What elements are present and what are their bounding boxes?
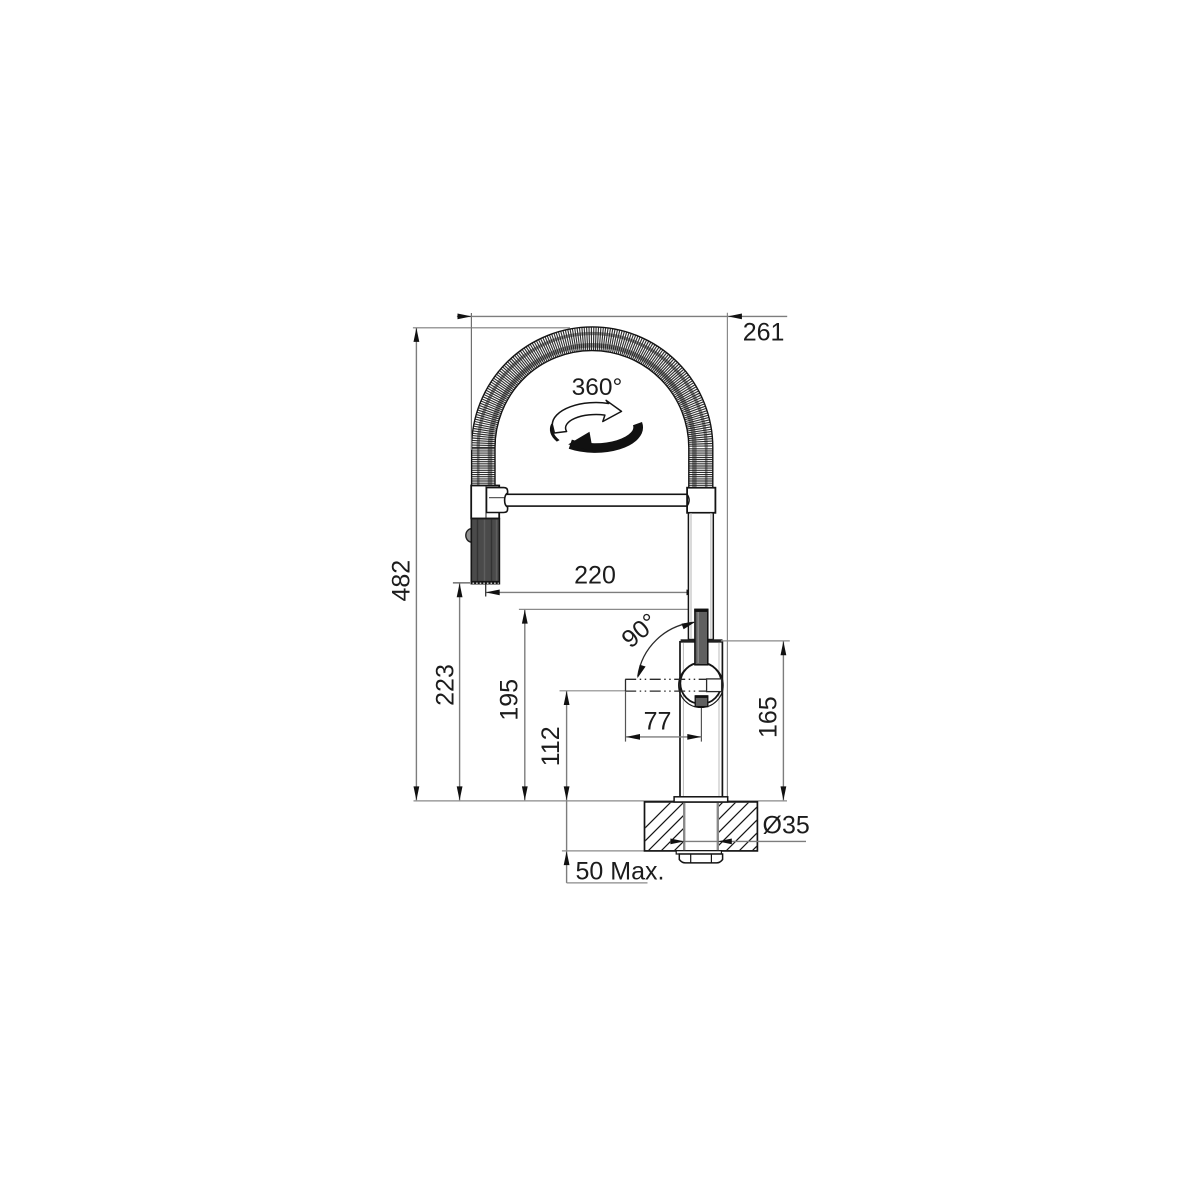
svg-text:195: 195 xyxy=(496,679,524,721)
svg-text:261: 261 xyxy=(743,318,785,346)
svg-text:112: 112 xyxy=(537,726,565,766)
svg-text:165: 165 xyxy=(754,696,782,738)
svg-text:50 Max.: 50 Max. xyxy=(576,858,665,886)
svg-text:482: 482 xyxy=(388,560,416,602)
svg-text:223: 223 xyxy=(432,664,460,706)
svg-text:360°: 360° xyxy=(572,374,623,401)
svg-text:Ø35: Ø35 xyxy=(763,812,810,840)
svg-text:77: 77 xyxy=(644,708,672,736)
svg-text:220: 220 xyxy=(574,561,616,589)
